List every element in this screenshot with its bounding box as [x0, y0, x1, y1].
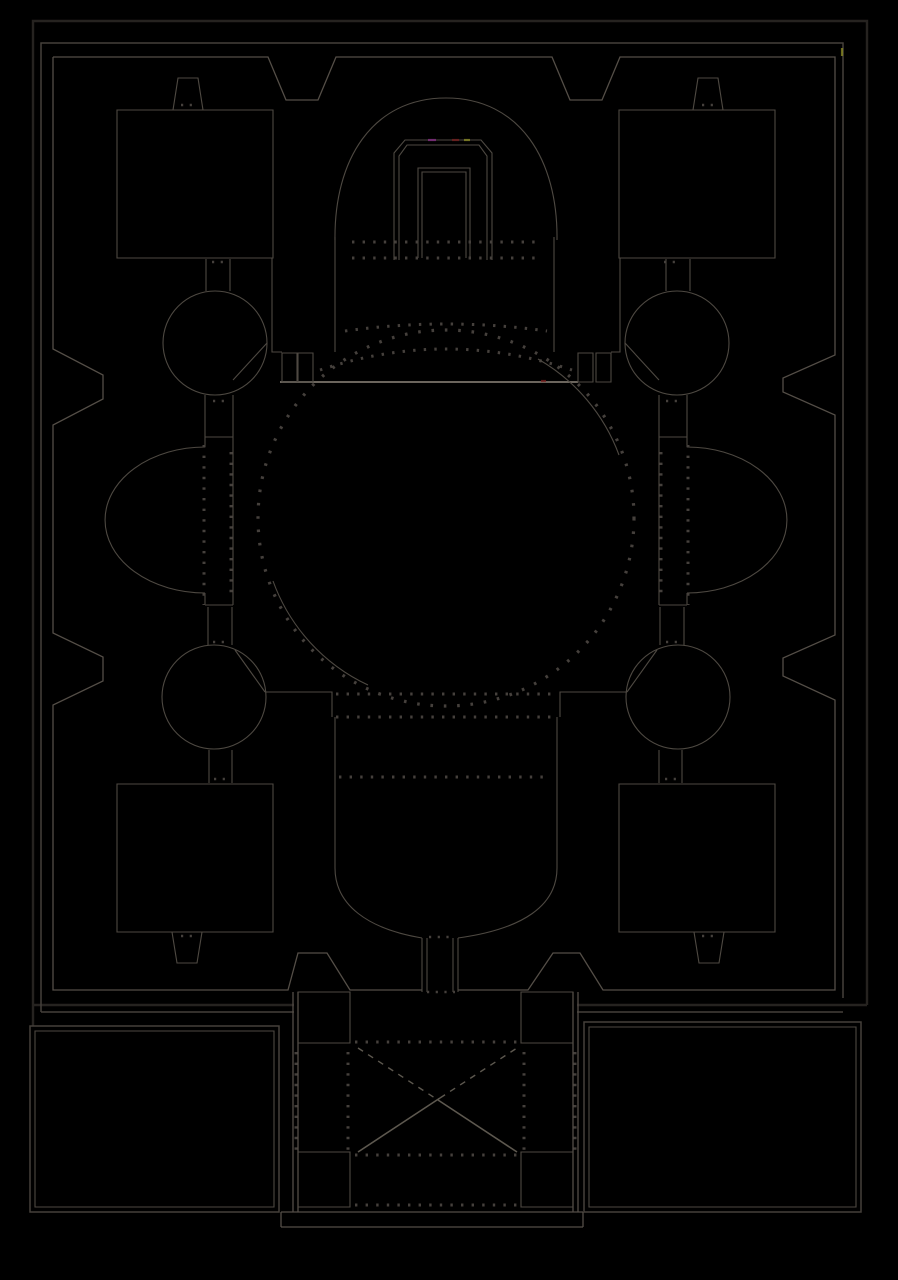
vault-diagonal-2-solid	[358, 1098, 440, 1152]
floor-plan-canvas	[0, 0, 898, 1280]
south-arm-walls	[335, 717, 557, 938]
dome-dotted-circle	[258, 330, 634, 706]
sanctuary-arch	[335, 98, 557, 240]
connector-se	[659, 750, 682, 783]
templon	[272, 258, 620, 382]
pier-stubs	[272, 258, 620, 352]
altar-u-inner	[418, 168, 470, 258]
connector-ne	[666, 259, 690, 291]
chamber-se	[619, 784, 775, 932]
passage-ne	[693, 78, 723, 110]
passage-se	[694, 932, 724, 963]
tower-chamfers	[233, 343, 659, 692]
tower-nw	[163, 291, 267, 395]
wing-east-outer	[584, 1022, 861, 1212]
tower-door-dots	[213, 401, 679, 642]
narthex-cell-se	[521, 1152, 573, 1207]
passage-sw	[172, 932, 202, 963]
connector-nw	[206, 259, 230, 291]
tower-se	[626, 645, 730, 749]
passage-door-dots	[181, 105, 717, 936]
bema-step-arc-2	[320, 349, 572, 370]
floor-plan-stage	[0, 0, 898, 1280]
connector-sw	[209, 750, 232, 783]
chamber-ne	[619, 110, 775, 258]
apse-west-arc	[105, 447, 205, 593]
wing-west-outer	[30, 1026, 279, 1212]
tower-sw	[162, 645, 266, 749]
altar-u-outer	[394, 140, 492, 260]
wing-west-inner	[35, 1031, 274, 1207]
corridor-walls	[422, 938, 458, 992]
naos-dome	[258, 330, 634, 706]
lateral-apses	[105, 437, 787, 605]
narthex	[281, 992, 583, 1227]
stair-towers	[162, 291, 730, 749]
narthex-side-walls	[293, 992, 578, 1212]
corridor-dots	[427, 937, 455, 992]
apse-east-wall	[659, 437, 687, 605]
tower-stubs	[205, 395, 687, 645]
apse-east-arc	[687, 447, 787, 593]
pilaster-1	[282, 353, 297, 382]
color-specks	[428, 48, 842, 381]
inner-wall-face	[53, 57, 835, 990]
south-arm	[265, 692, 627, 992]
apse-west-wall	[205, 437, 233, 605]
second-boundary	[41, 43, 843, 1012]
chamber-nw	[117, 110, 273, 258]
dome-solid-arc-sw	[273, 581, 368, 685]
vault-diagonal-1-dashed	[358, 1048, 438, 1100]
bema-side-walls	[335, 237, 554, 352]
tower-ne	[625, 291, 729, 395]
passage-nw	[173, 78, 203, 110]
chamber-sw	[117, 784, 273, 932]
narthex-bottom-band	[281, 1212, 583, 1227]
corner-chambers	[117, 78, 775, 963]
pilaster-4	[596, 353, 611, 382]
wing-east-inner	[589, 1027, 856, 1207]
vault-diagonal-1-solid	[438, 1100, 517, 1152]
pilaster-2	[298, 353, 313, 382]
narthex-cell-ne	[521, 992, 573, 1043]
narthex-cell-sw	[298, 1152, 350, 1207]
vault-diagonal-2-dashed	[440, 1048, 517, 1098]
pilaster-3	[578, 353, 593, 382]
courtyard-wings	[30, 1022, 861, 1212]
narthex-cell-nw	[298, 992, 350, 1043]
